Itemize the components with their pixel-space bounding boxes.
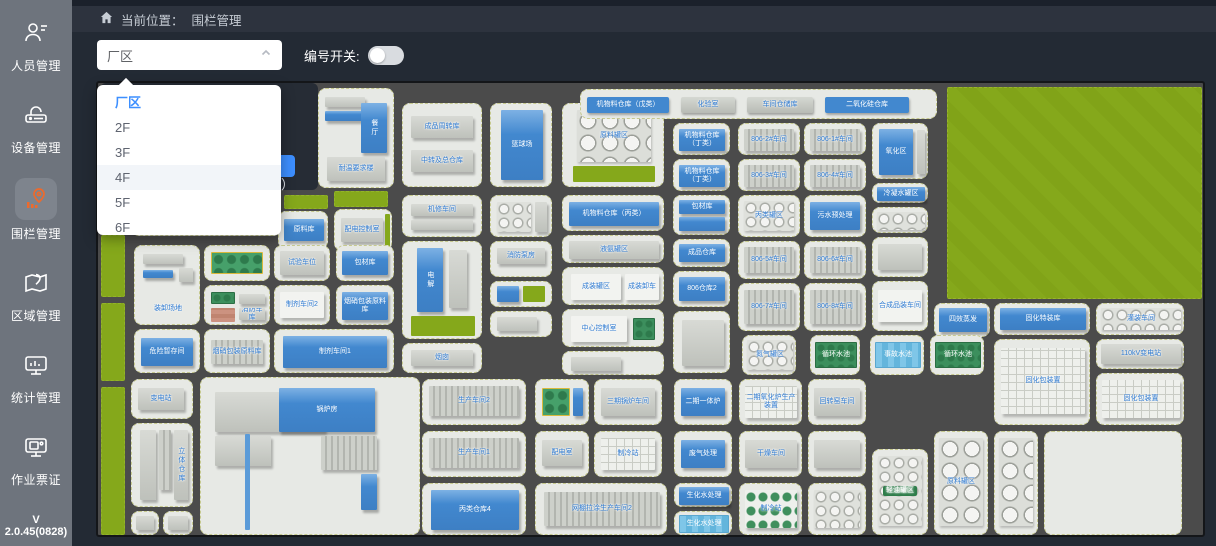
- map-plot: 806-8#车间: [804, 283, 866, 331]
- map-plot: 806-7#车间: [738, 283, 800, 331]
- map-plot: 干燥车间: [739, 431, 802, 477]
- map-building: 机物料仓库（戊类）: [587, 97, 669, 113]
- map-building: [385, 214, 390, 248]
- map-plot: 机物料仓库（丁类）: [673, 123, 730, 155]
- map-building-label: 中转及总仓库: [411, 150, 473, 172]
- map-plot: 成品仓库: [673, 239, 730, 267]
- map-plot: [204, 245, 270, 281]
- map-building-label: 固化特装库: [1000, 308, 1086, 330]
- map-building-label: 生化水处理: [679, 487, 729, 505]
- map-building: [159, 430, 171, 490]
- map-plot: [872, 237, 928, 277]
- map-building-label: 氧化区: [879, 129, 913, 175]
- map-building: [325, 97, 365, 107]
- map-plot: 固化包装置: [1096, 373, 1184, 425]
- map-building-label: 成装罐区: [571, 274, 621, 300]
- map-plot: [131, 511, 159, 535]
- numbering-toggle-group: 编号开关:: [304, 40, 404, 70]
- map-plot: 制剂车间1: [274, 329, 394, 373]
- map-building: 液氨罐区: [569, 241, 659, 259]
- map-building-label: 污水预处理: [810, 202, 860, 230]
- map-building: 灌装车间: [1101, 308, 1181, 330]
- map-building: 成品仓库: [679, 244, 725, 262]
- map-building: 原料库: [284, 219, 324, 241]
- map-plot: 液氨罐区: [562, 235, 664, 263]
- map-building: [679, 217, 725, 231]
- map-building-label: 危险暂存间: [141, 338, 193, 366]
- dropdown-option-factory[interactable]: 厂区: [97, 90, 281, 115]
- map-building-label: 二期一体炉: [681, 388, 725, 416]
- map-plot: [490, 311, 552, 337]
- map-building: 806-5#车间: [744, 247, 794, 273]
- sidebar-item-fence[interactable]: 围栏管理: [4, 178, 68, 242]
- map-building: 废气处理: [681, 440, 725, 468]
- map-building: 806-4#车间: [810, 165, 860, 187]
- map-building: 网棚拉涂生产车间2: [544, 492, 660, 526]
- map-building-label: 锅炉房: [279, 388, 375, 432]
- map-building-label: 装卸场地: [143, 302, 193, 316]
- map-building: [877, 212, 925, 230]
- map-plot: 原料罐区: [934, 431, 988, 535]
- map-building: 固化特装库: [1000, 308, 1086, 330]
- map-plot: 餐厅耐温要求楼: [318, 88, 394, 188]
- map-building-label: 生产车间2: [429, 386, 519, 416]
- map-building-label: 包材库: [679, 200, 725, 214]
- map-building-label: 生化水处理: [680, 516, 728, 532]
- map-plot: 806-6#车间: [804, 241, 866, 279]
- map-building: 装卸场地: [143, 302, 193, 316]
- map-plot: 配电室: [535, 431, 589, 477]
- map-building-label: 制冷站: [601, 438, 655, 470]
- dropdown-option-3f[interactable]: 3F: [97, 140, 281, 165]
- map-plot: 合成品装车间: [872, 281, 928, 331]
- floor-dropdown: 厂区 2F 3F 4F 5F 6F: [97, 85, 281, 235]
- map-plot: 四效蒸发: [934, 303, 990, 337]
- map-building: 餐厅: [361, 103, 387, 153]
- map-building-label: 成品仓库: [679, 244, 725, 262]
- map-building-label: 轻油罐区: [878, 456, 922, 526]
- map-icon: [17, 264, 55, 302]
- map-plot: [562, 351, 664, 375]
- sidebar-item-work-permit[interactable]: 作业票证: [4, 428, 68, 488]
- map-building: 化验室: [681, 97, 735, 113]
- map-plot: 篮球场: [490, 103, 552, 187]
- map-building: 篮球场: [501, 110, 543, 180]
- home-icon: [100, 11, 113, 27]
- map-building-label: 废气处理: [681, 440, 725, 468]
- map-building: [571, 357, 621, 371]
- map-building: 制剂车间2: [280, 292, 324, 318]
- map-plot: 包材库: [336, 245, 394, 281]
- map-plot: 包材库: [673, 195, 730, 235]
- map-building-label: 成装卸车: [625, 274, 659, 300]
- map-building: 生产车间1: [429, 438, 519, 468]
- map-building: [143, 270, 173, 278]
- map-building-label: 配电控制室: [341, 218, 383, 242]
- map-building-label: 806-4#车间: [810, 165, 860, 187]
- map-building-label: 机修车间: [411, 204, 473, 216]
- map-plot: 806-1#车间: [804, 123, 866, 155]
- map-building: [523, 286, 545, 302]
- map-building: 锅炉房: [279, 388, 375, 432]
- dropdown-option-2f[interactable]: 2F: [97, 115, 281, 140]
- map-plot: 消防泵房: [490, 241, 552, 277]
- map-plot: 网棚拉涂生产车间2: [535, 483, 667, 535]
- map-building: 变电站: [138, 388, 184, 410]
- map-plot: 回转窑车间: [808, 379, 866, 425]
- map-building-label: 固化包装置: [1102, 380, 1180, 418]
- map-plot: [808, 483, 866, 535]
- numbering-toggle-label: 编号开关:: [304, 46, 360, 65]
- map-building: 合成品装车间: [878, 290, 922, 322]
- map-plot: 二期氧化炉生产装置: [739, 379, 802, 425]
- map-building-label: 烟硝包装原料库: [342, 292, 388, 320]
- map-building-label: 循环水池: [816, 343, 856, 367]
- sidebar: 人员管理 设备管理 围栏管理: [0, 0, 72, 546]
- map-building: 烟硝包装原料库: [342, 292, 388, 320]
- sidebar-item-statistics[interactable]: 统计管理: [4, 346, 68, 406]
- map-building: [497, 202, 531, 232]
- map-building: [411, 316, 475, 336]
- map-building-label: 干燥车间: [745, 440, 797, 468]
- map-building: 806-7#车间: [744, 290, 794, 324]
- map-plot: 循环水池: [810, 335, 860, 375]
- map-building: 中心控制室: [571, 316, 627, 342]
- floor-select[interactable]: 厂区: [97, 40, 282, 70]
- sidebar-item-label: 统计管理: [11, 389, 61, 406]
- map-building: 机物料仓库（丙类）: [569, 202, 659, 226]
- map-building: [573, 166, 655, 182]
- map-building-label: 成品周转库: [411, 116, 473, 138]
- map-plot: 灌装车间: [1096, 303, 1184, 335]
- map-building: 806-8#车间: [810, 290, 860, 324]
- map-green-area: [334, 191, 388, 207]
- breadcrumb: 当前位置： 围栏管理: [72, 6, 1216, 32]
- map-plot: 轻油罐区: [872, 449, 928, 535]
- map-plot: 危险暂存间: [134, 329, 200, 373]
- map-plot: 三期锅炉车间: [594, 379, 662, 425]
- map-building: [211, 252, 263, 274]
- sidebar-item-label: 作业票证: [11, 471, 61, 488]
- map-building-label: 变电站: [138, 388, 184, 410]
- map-plot: 固化特装库: [994, 303, 1090, 335]
- map-building-label: 806-7#车间: [744, 290, 794, 324]
- map-plot: 806-2#车间: [738, 123, 800, 155]
- map-plot: 机修车间: [402, 195, 482, 237]
- map-plot: [490, 281, 552, 307]
- map-building-label: 化验室: [681, 97, 735, 113]
- map-building-label: 电解: [417, 248, 443, 312]
- map-green-area: [101, 235, 125, 297]
- map-plot: 烟囱: [402, 343, 482, 373]
- map-building-label: 包材库: [342, 251, 388, 275]
- map-building: 806-1#车间: [810, 129, 860, 151]
- map-building: 包材库: [342, 251, 388, 275]
- map-plot: [163, 511, 193, 535]
- map-plot: 原料库: [278, 211, 328, 249]
- map-plot: 806-5#车间: [738, 241, 800, 279]
- dropdown-option-5f[interactable]: 5F: [97, 190, 281, 215]
- map-green-area: [947, 87, 1202, 299]
- map-building: [168, 516, 188, 530]
- map-plot: 机物料仓库（丙类）: [562, 195, 664, 231]
- map-building: 制剂车间1: [283, 336, 387, 368]
- popup-paren-text: ）: [281, 174, 294, 193]
- map-building-label: 机物料仓库（丙类）: [569, 202, 659, 226]
- map-building-label: 网棚拉涂生产车间2: [544, 492, 660, 526]
- map-building: [321, 436, 377, 470]
- map-building: 冷凝水罐区: [877, 187, 925, 201]
- map-building: 试验车位: [280, 251, 324, 275]
- map-building-label: 机物料仓库（丁类）: [679, 129, 725, 151]
- map-building: 生化水处理: [679, 515, 729, 533]
- map-plot: 生化水处理: [674, 511, 732, 535]
- map-building-label: 氮气罐区: [747, 340, 793, 370]
- map-building: [497, 317, 537, 331]
- map-plot: 110kV变电站: [1096, 339, 1184, 369]
- map-building: [542, 388, 570, 416]
- map-building: [211, 292, 235, 304]
- map-building: 成装卸车: [625, 274, 659, 300]
- map-building: [179, 268, 193, 282]
- map-plot: 烟硝包装原料库: [336, 285, 394, 325]
- map-plot: 丙类罐区: [738, 195, 800, 237]
- map-plot: 废气处理: [674, 431, 732, 477]
- map-building: [535, 202, 547, 232]
- map-building: 配电控制室: [341, 218, 383, 242]
- map-building: 制冷站: [745, 490, 797, 528]
- map-building: 二期氧化炉生产装置: [745, 386, 797, 418]
- map-building: 二期一体炉: [681, 388, 725, 416]
- map-building-label: 烟囱: [411, 350, 473, 366]
- map-building-label: 烟硝包装原料库: [211, 340, 263, 364]
- map-building: 三期锅炉车间: [601, 388, 655, 416]
- map-building-label: 冷凝水罐区: [877, 187, 925, 201]
- map-building-label: 四效蒸发: [939, 308, 987, 332]
- map-building-label: 篮球场: [501, 110, 543, 180]
- map-building-label: 固化包装置: [1001, 348, 1085, 414]
- map-building-label: 立体仓库: [174, 430, 188, 500]
- map-building-label: 机物料仓库（丁类）: [679, 165, 725, 187]
- sidebar-item-label: 围栏管理: [11, 225, 61, 242]
- map-plot: [994, 431, 1038, 535]
- map-building: [878, 244, 922, 270]
- map-building: 机修车间: [411, 204, 473, 216]
- controls-row: 厂区 编号开关:: [72, 32, 1216, 78]
- map-building-label: 消防车库: [239, 308, 265, 320]
- map-plot: 中心控制室: [562, 309, 664, 347]
- map-building-label: 丙类仓库4: [431, 490, 519, 530]
- map-building: [140, 430, 156, 500]
- map-building-label: 二期氧化炉生产装置: [745, 386, 797, 418]
- map-building: [999, 438, 1033, 526]
- breadcrumb-prefix: 当前位置：: [121, 10, 184, 29]
- map-building: [633, 318, 655, 340]
- map-building: [573, 388, 583, 416]
- map-plot: 生产车间1: [422, 431, 526, 477]
- map-building-label: 循环水池: [936, 343, 980, 367]
- map-building-label: 制冷站: [745, 490, 797, 528]
- map-building-label: 液氨罐区: [569, 241, 659, 259]
- map-building: 消防车库: [239, 308, 265, 320]
- map-building: [361, 474, 377, 510]
- map-plot: 装卸场地: [134, 245, 200, 325]
- map-building-label: 806-2#车间: [744, 129, 794, 151]
- map-building-label: 丙类罐区: [744, 201, 794, 231]
- map-building: 烟硝包装原料库: [211, 340, 263, 364]
- map-building-label: 三期锅炉车间: [601, 388, 655, 416]
- map-plot: 成品周转库中转及总仓库: [402, 103, 482, 187]
- map-plot: [808, 431, 866, 477]
- map-building-label: 806仓库2: [679, 277, 725, 301]
- map-building-label: 806-6#车间: [810, 247, 860, 273]
- map-building: [814, 490, 860, 528]
- map-building: 生产车间2: [429, 386, 519, 416]
- map-green-area: [284, 195, 328, 209]
- map-building: 丙类罐区: [744, 201, 794, 231]
- map-building-label: 二氧化硅仓库: [825, 97, 909, 113]
- map-building: 固化包装置: [1001, 348, 1085, 414]
- sidebar-item-label: 区域管理: [11, 307, 61, 324]
- map-building: [325, 111, 365, 121]
- map-building: 成装罐区: [571, 274, 621, 300]
- map-building: 氧化区: [879, 129, 913, 175]
- map-building: [411, 220, 473, 230]
- map-building-label: 机物料仓库（戊类）: [587, 97, 669, 113]
- map-building: 立体仓库: [174, 430, 188, 500]
- map-building: [814, 440, 860, 468]
- map-building: 机物料仓库（丁类）: [679, 165, 725, 187]
- map-building: 四效蒸发: [939, 308, 987, 332]
- map-plot: 成装罐区成装卸车: [562, 267, 664, 305]
- map-building: [136, 516, 154, 530]
- ticket-monitor-icon: [17, 428, 55, 466]
- map-green-area: [101, 303, 125, 381]
- map-building-label: 消防泵房: [497, 248, 545, 264]
- app-window: 人员管理 设备管理 围栏管理: [0, 0, 1216, 546]
- sidebar-item-region[interactable]: 区域管理: [4, 264, 68, 324]
- map-plot: 机物料仓库（丁类）: [673, 159, 730, 191]
- map-building-label: 原料罐区: [939, 438, 983, 526]
- map-plot: 循环水池: [930, 335, 984, 375]
- map-plot: 电解: [402, 241, 482, 339]
- dropdown-option-6f[interactable]: 6F: [97, 215, 281, 240]
- map-plot: [673, 311, 730, 373]
- map-building: 机物料仓库（丁类）: [679, 129, 725, 151]
- map-building: 成品周转库: [411, 116, 473, 138]
- map-building: 烟囱: [411, 350, 473, 366]
- map-building-label: 806-3#车间: [744, 165, 794, 187]
- map-building: 循环水池: [935, 342, 981, 368]
- map-building-label: 原料库: [284, 219, 324, 241]
- breadcrumb-current: 围栏管理: [192, 10, 242, 29]
- toggle-knob: [370, 48, 385, 63]
- map-plot: 污水预处理: [804, 195, 866, 237]
- map-building-label: 制剂车间2: [280, 292, 324, 318]
- map-plot: [1044, 431, 1182, 535]
- map-plot: [490, 195, 552, 237]
- map-plot: 生产车间2: [422, 379, 526, 425]
- map-plot: 固化包装置: [994, 339, 1090, 425]
- map-building: [245, 434, 250, 530]
- map-plot: 立体仓库: [131, 423, 193, 507]
- map-plot: 消防车库: [204, 285, 270, 325]
- fence-pin-icon: [15, 178, 57, 220]
- person-icon: [17, 14, 55, 52]
- map-plot: 变电站: [131, 379, 193, 419]
- map-building: 污水预处理: [810, 202, 860, 230]
- map-plot: 试验车位: [274, 245, 330, 281]
- map-building-label: 合成品装车间: [878, 290, 922, 322]
- map-plot: 冷凝水罐区: [872, 183, 928, 203]
- map-building: 806-6#车间: [810, 247, 860, 273]
- map-building-label: 中心控制室: [571, 316, 627, 342]
- map-building-label: 餐厅: [361, 103, 387, 153]
- sidebar-item-devices[interactable]: 设备管理: [4, 96, 68, 156]
- map-building: 耐温要求楼: [327, 157, 385, 181]
- map-building: 氮气罐区: [747, 340, 793, 370]
- map-building: [449, 250, 467, 308]
- map-building: [497, 286, 519, 302]
- map-building: 事故水池: [875, 342, 921, 368]
- map-building-label: 生产车间1: [429, 438, 519, 468]
- map-building: [239, 294, 265, 304]
- map-building-label: 806-1#车间: [810, 129, 860, 151]
- map-building: 循环水池: [815, 342, 857, 368]
- map-building: 车间仓储库: [747, 97, 813, 113]
- sidebar-item-personnel[interactable]: 人员管理: [4, 14, 68, 74]
- map-building: 固化包装置: [1102, 380, 1180, 418]
- map-building: 中转及总仓库: [411, 150, 473, 172]
- map-plot: 806-3#车间: [738, 159, 800, 191]
- map-building: 配电室: [542, 440, 582, 466]
- map-building: 电解: [417, 248, 443, 312]
- map-building: 危险暂存间: [141, 338, 193, 366]
- app-version: V 2.0.45(0828): [0, 514, 72, 538]
- map-building-label: 耐温要求楼: [327, 157, 385, 181]
- map-building-label: 灌装车间: [1101, 308, 1181, 330]
- map-plot: 806仓库2: [673, 271, 730, 307]
- map-building: 制冷站: [601, 438, 655, 470]
- map-building: 806-3#车间: [744, 165, 794, 187]
- map-building: [682, 320, 724, 366]
- map-plot: 烟硝包装原料库: [204, 329, 270, 373]
- map-building: 806仓库2: [679, 277, 725, 301]
- device-icon: [17, 96, 55, 134]
- map-building: 110kV变电站: [1101, 344, 1181, 364]
- map-building: 806-2#车间: [744, 129, 794, 151]
- map-plot: 锅炉房: [200, 377, 420, 535]
- map-building-label: 车间仓储库: [747, 97, 813, 113]
- map-building: 原料罐区: [939, 438, 983, 526]
- map-building-label: 110kV变电站: [1101, 344, 1181, 364]
- stats-monitor-icon: [17, 346, 55, 384]
- map-building: 干燥车间: [745, 440, 797, 468]
- map-building: 轻油罐区: [878, 456, 922, 526]
- map-plot: 丙类仓库4: [422, 483, 526, 535]
- numbering-toggle[interactable]: [368, 46, 404, 65]
- dropdown-option-4f[interactable]: 4F: [97, 165, 281, 190]
- map-building: 消防泵房: [497, 248, 545, 264]
- map-building: 二氧化硅仓库: [825, 97, 909, 113]
- map-plot: 机物料仓库（戊类）化验室车间仓储库二氧化硅仓库: [580, 89, 937, 119]
- map-building: [143, 254, 183, 264]
- map-building-label: 806-8#车间: [810, 290, 860, 324]
- map-plot: 806-4#车间: [804, 159, 866, 191]
- map-building: [917, 130, 925, 174]
- map-building: 包材库: [679, 200, 725, 214]
- map-plot: 制剂车间2: [274, 285, 330, 325]
